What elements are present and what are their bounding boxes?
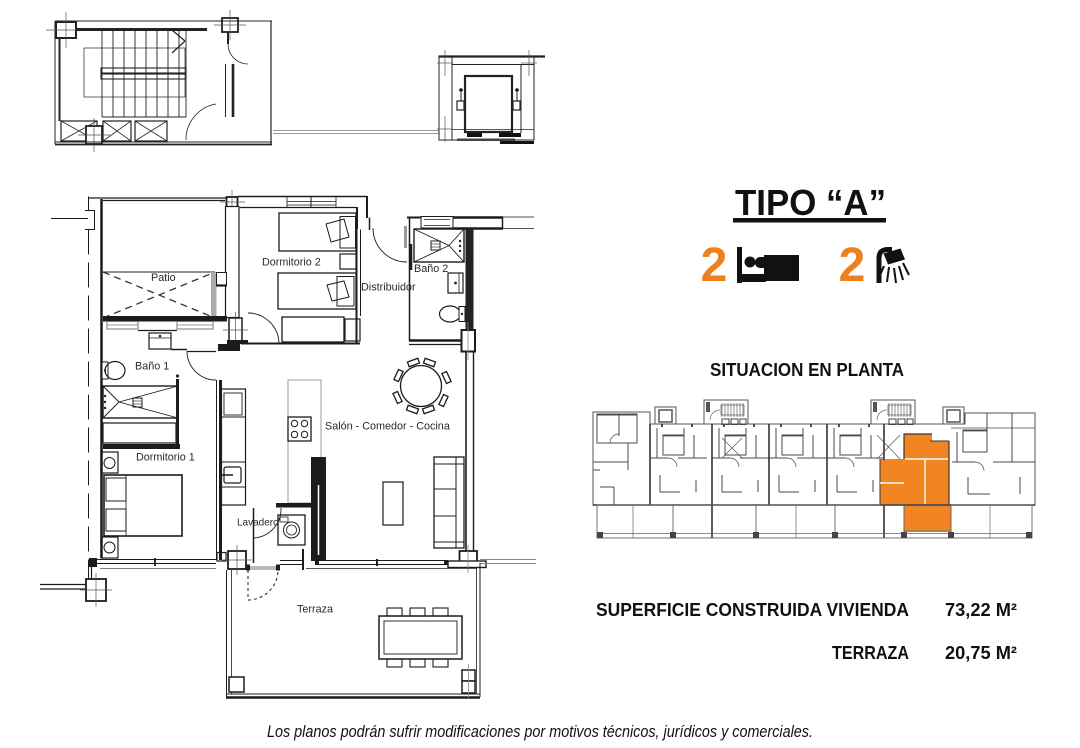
svg-text:Patio: Patio (151, 272, 176, 284)
svg-text:Distribuidor: Distribuidor (361, 282, 416, 294)
svg-text:2: 2 (701, 239, 728, 292)
svg-text:Terraza: Terraza (297, 604, 333, 616)
svg-text:Baño 2: Baño 2 (414, 263, 448, 275)
svg-text:20,75 M²: 20,75 M² (945, 643, 1017, 663)
svg-text:Lavadero: Lavadero (237, 518, 279, 529)
svg-text:Salón - Comedor - Cocina: Salón - Comedor - Cocina (325, 421, 450, 433)
svg-text:2: 2 (839, 239, 866, 292)
svg-text:Baño 1: Baño 1 (135, 361, 169, 373)
svg-text:Dormitorio 2: Dormitorio 2 (262, 257, 321, 269)
svg-text:TERRAZA: TERRAZA (832, 643, 909, 663)
svg-text:SUPERFICIE CONSTRUIDA VIVIENDA: SUPERFICIE CONSTRUIDA VIVIENDA (596, 600, 909, 620)
svg-text:Los planos podrán sufrir modif: Los planos podrán sufrir modificaciones … (267, 722, 813, 741)
svg-text:SITUACION EN PLANTA: SITUACION EN PLANTA (710, 359, 904, 380)
svg-text:73,22 M²: 73,22 M² (945, 600, 1017, 620)
svg-text:TIPO “A”: TIPO “A” (735, 182, 886, 223)
svg-text:Dormitorio 1: Dormitorio 1 (136, 452, 195, 464)
